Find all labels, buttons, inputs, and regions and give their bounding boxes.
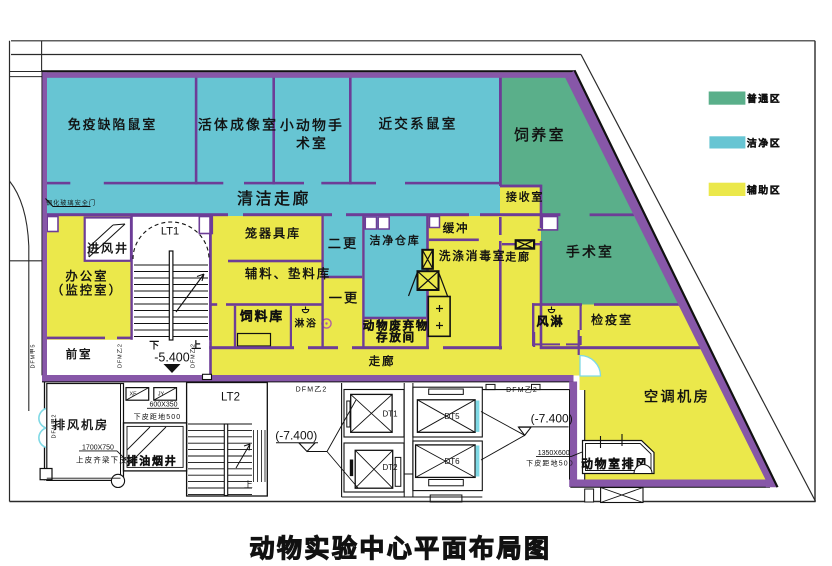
svg-text:LT1: LT1: [161, 226, 179, 238]
svg-text:DFM乙2: DFM乙2: [296, 386, 328, 394]
svg-text:-5.400: -5.400: [154, 351, 189, 365]
svg-text:近交系鼠室: 近交系鼠室: [379, 116, 458, 132]
svg-text:动物实验中心平面布局图: 动物实验中心平面布局图: [250, 534, 552, 563]
svg-text:走廊: 走廊: [369, 354, 396, 368]
svg-text:洗涤消毒室: 洗涤消毒室: [439, 249, 507, 263]
svg-text:淋浴: 淋浴: [295, 316, 318, 329]
svg-text:动物废弃物: 动物废弃物: [363, 318, 429, 332]
svg-text:排油烟井: 排油烟井: [127, 454, 178, 468]
svg-text:术室: 术室: [296, 135, 328, 151]
svg-text:DFM乙2: DFM乙2: [506, 386, 538, 394]
svg-text:上皮齐梁下皮: 上皮齐梁下皮: [76, 454, 128, 464]
svg-text:接收室: 接收室: [506, 190, 544, 204]
svg-text:辅料、垫料库: 辅料、垫料库: [245, 266, 331, 281]
svg-text:前室: 前室: [66, 347, 93, 361]
svg-text:洁净区: 洁净区: [747, 136, 781, 149]
svg-text:手术室: 手术室: [566, 243, 614, 259]
svg-text:免疫缺陷鼠室: 免疫缺陷鼠室: [68, 117, 157, 132]
svg-text:600X350: 600X350: [149, 402, 177, 409]
svg-text:存放间: 存放间: [376, 330, 416, 344]
svg-text:排风机房: 排风机房: [53, 417, 109, 432]
svg-text:上: 上: [244, 479, 254, 489]
svg-text:普通区: 普通区: [747, 92, 781, 105]
svg-text:DFM甲2: DFM甲2: [51, 414, 58, 439]
svg-text:DFM乙2: DFM乙2: [117, 343, 124, 368]
svg-text:DT1: DT1: [382, 409, 398, 418]
svg-text:DFM乙2: DFM乙2: [190, 343, 197, 368]
svg-text:缓冲: 缓冲: [443, 221, 470, 235]
svg-text:DT5: DT5: [444, 412, 460, 421]
svg-text:DFM甲5: DFM甲5: [30, 344, 37, 369]
svg-text:1350X600: 1350X600: [538, 450, 570, 457]
svg-text:LT2: LT2: [221, 392, 240, 404]
svg-text:下皮距地500: 下皮距地500: [134, 412, 182, 421]
svg-text:钢化玻璃安全门: 钢化玻璃安全门: [46, 199, 96, 207]
svg-text:风淋: 风淋: [536, 314, 564, 329]
svg-text:DT2: DT2: [382, 463, 398, 472]
svg-text:空调机房: 空调机房: [644, 388, 710, 405]
svg-text:1700X750: 1700X750: [82, 444, 114, 451]
svg-text:一更: 一更: [329, 291, 360, 306]
svg-text:DT6: DT6: [444, 457, 460, 466]
svg-text:检疫室: 检疫室: [591, 312, 633, 327]
svg-text:办公室: 办公室: [65, 269, 108, 284]
svg-text:活体成像室: 活体成像室: [198, 116, 278, 132]
svg-text:洁净仓库: 洁净仓库: [370, 233, 421, 247]
svg-text:小动物手: 小动物手: [280, 117, 344, 133]
svg-text:JY: JY: [158, 392, 165, 398]
svg-text:笼器具库: 笼器具库: [245, 226, 301, 241]
svg-text:辅助区: 辅助区: [747, 183, 781, 196]
svg-text:(-7.400): (-7.400): [531, 411, 573, 425]
svg-text:清洁走廊: 清洁走廊: [237, 190, 311, 208]
svg-text:(-7.400): (-7.400): [275, 428, 317, 442]
svg-text:饲料库: 饲料库: [239, 308, 284, 323]
svg-text:走廊: 走廊: [505, 250, 531, 264]
svg-text:XF: XF: [129, 392, 137, 398]
svg-text:二更: 二更: [328, 236, 359, 251]
svg-text:（监控室）: （监控室）: [51, 283, 123, 298]
svg-text:下皮距地500: 下皮距地500: [526, 459, 574, 468]
svg-text:饲养室: 饲养室: [514, 127, 566, 144]
